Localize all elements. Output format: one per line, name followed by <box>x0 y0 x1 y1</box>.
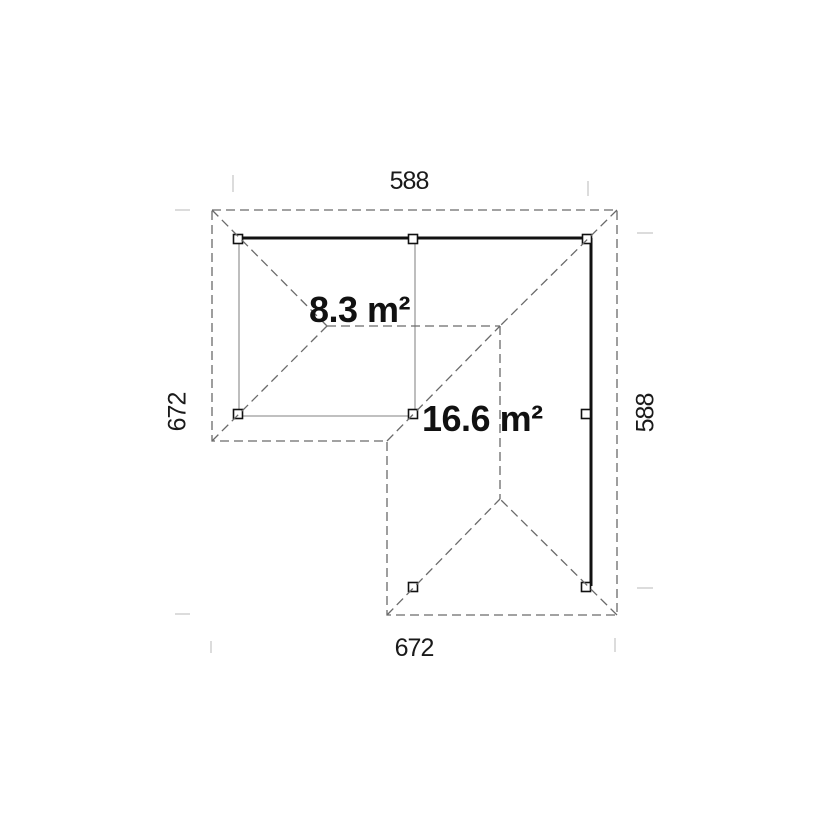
roof-ridge-line <box>387 499 500 615</box>
post <box>582 410 591 419</box>
dimension-left-height: 672 <box>166 393 191 432</box>
dimension-top-width: 588 <box>390 169 429 194</box>
dimension-right-height: 588 <box>634 394 659 433</box>
area-label-large-section: 16.6 m² <box>422 401 543 437</box>
roof-ridge-line <box>500 499 617 615</box>
floor-plan-page: 588 672 672 588 8.3 m² 16.6 m² <box>0 0 828 828</box>
roof-ridge-line <box>500 210 617 326</box>
dimension-bottom-width: 672 <box>395 636 434 661</box>
post <box>409 583 418 592</box>
area-label-small-section: 8.3 m² <box>309 292 410 328</box>
post <box>234 410 243 419</box>
roof-ridge-line <box>212 326 327 441</box>
post <box>409 235 418 244</box>
floor-plan-drawing <box>0 0 828 828</box>
